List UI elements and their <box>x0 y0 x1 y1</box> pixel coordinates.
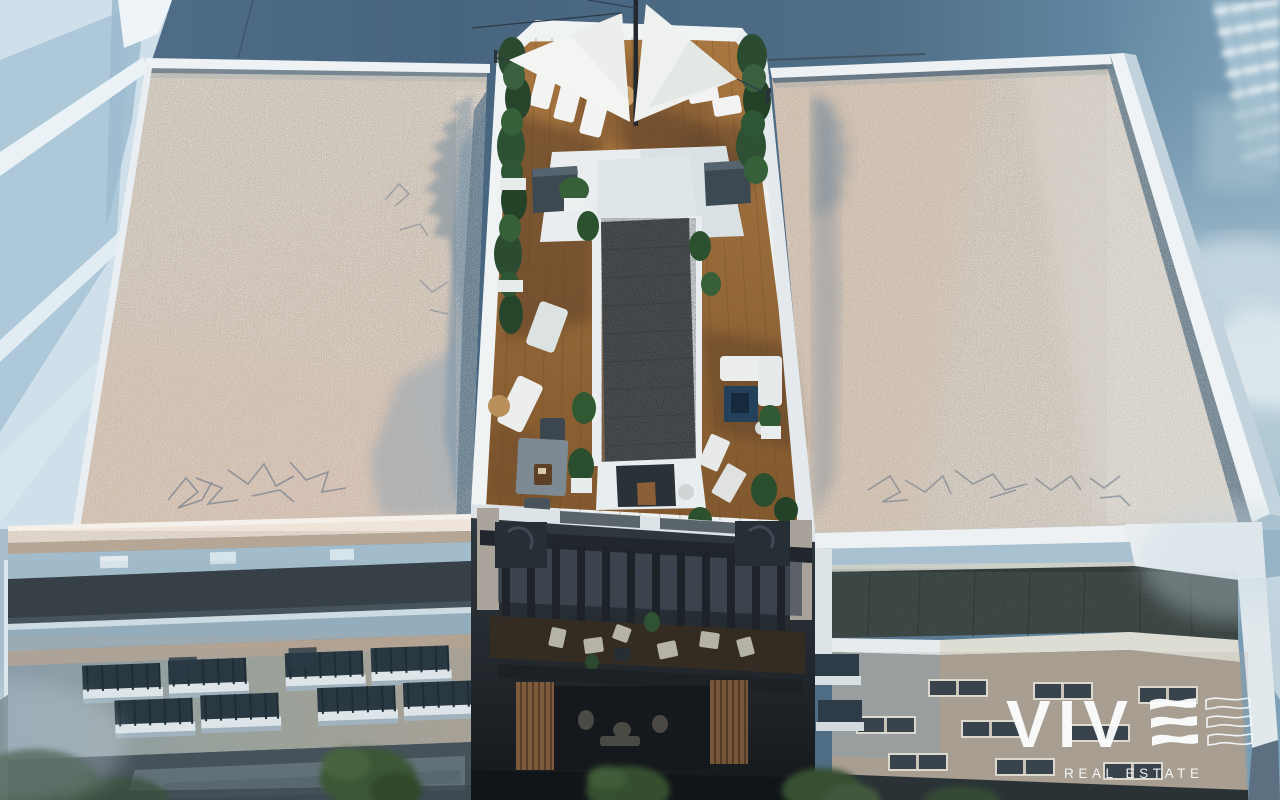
svg-text:REAL ESTATE: REAL ESTATE <box>1064 766 1204 781</box>
svg-text:VIV: VIV <box>1006 687 1135 762</box>
